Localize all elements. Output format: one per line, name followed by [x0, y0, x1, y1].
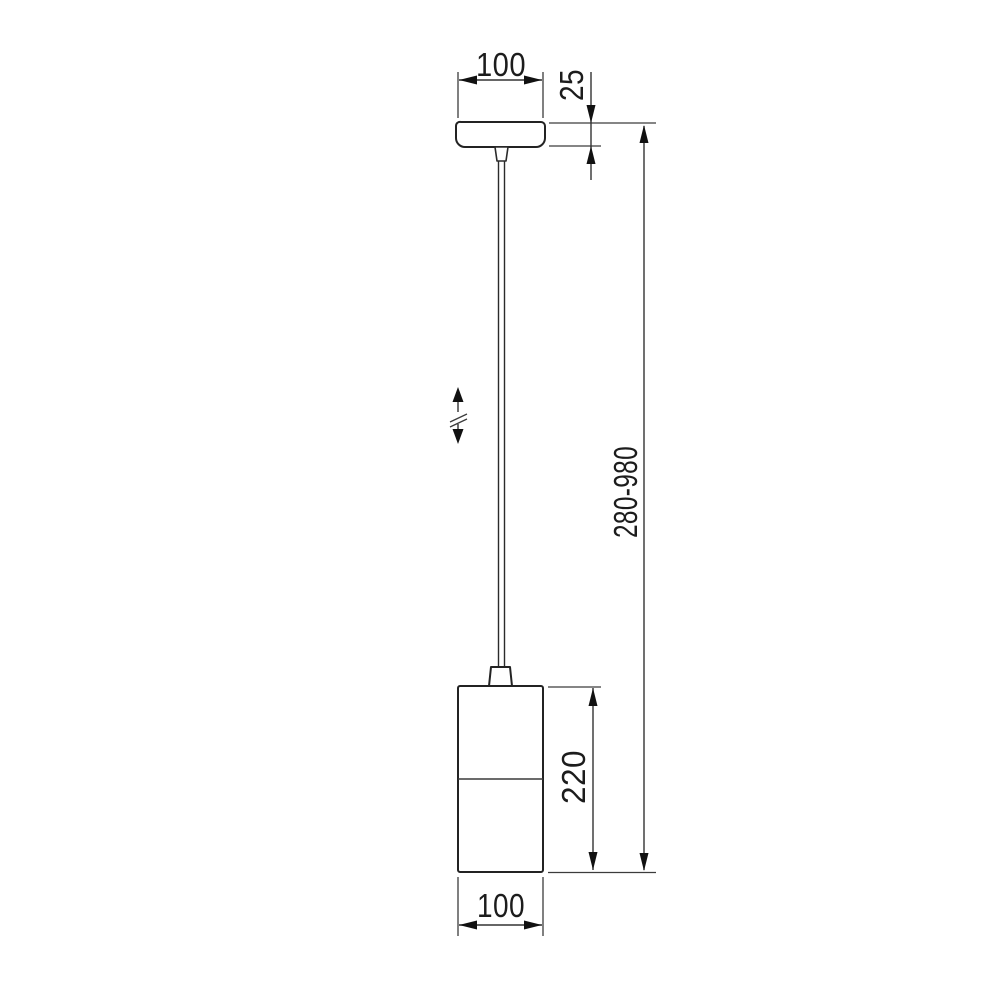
connector-outline — [489, 667, 512, 686]
dim-overall-height-label: 280-980 — [607, 446, 644, 538]
dim-canopy-height: 25 — [549, 69, 656, 180]
dim-canopy-height-label: 25 — [553, 69, 590, 101]
arrowhead-left — [459, 76, 477, 85]
dim-shade-width-label: 100 — [477, 887, 525, 924]
dim-shade-height: 220 — [548, 687, 656, 873]
suspension-cord — [499, 161, 505, 667]
arrowhead-bottom — [640, 853, 649, 871]
lamp-shade — [458, 686, 543, 872]
drawing-canvas: 100 25 280-980 220 — [0, 0, 1000, 1000]
dim-shade-height-label: 220 — [555, 750, 592, 804]
ceiling-canopy — [456, 122, 545, 161]
arrowhead-bottom — [589, 852, 598, 870]
arrowhead-left — [459, 921, 477, 930]
dim-canopy-width: 100 — [458, 46, 543, 118]
arrowhead-top — [589, 688, 598, 706]
arrowhead-down — [587, 105, 596, 123]
dim-canopy-width-label: 100 — [476, 46, 526, 83]
arrowhead-up — [587, 146, 596, 164]
adjust-arrow-up — [453, 387, 464, 402]
dim-shade-width: 100 — [458, 877, 543, 936]
canopy-outline — [456, 122, 545, 147]
arrowhead-right — [524, 921, 542, 930]
pendant-lamp-dimension-drawing: 100 25 280-980 220 — [0, 0, 1000, 1000]
arrowhead-right — [524, 76, 542, 85]
dim-overall-height: 280-980 — [607, 125, 649, 871]
cord-grip — [495, 147, 508, 161]
height-adjust-icon — [450, 387, 467, 444]
adjust-arrow-down — [453, 429, 464, 444]
arrowhead-top — [640, 125, 649, 143]
shade-connector — [489, 667, 512, 686]
